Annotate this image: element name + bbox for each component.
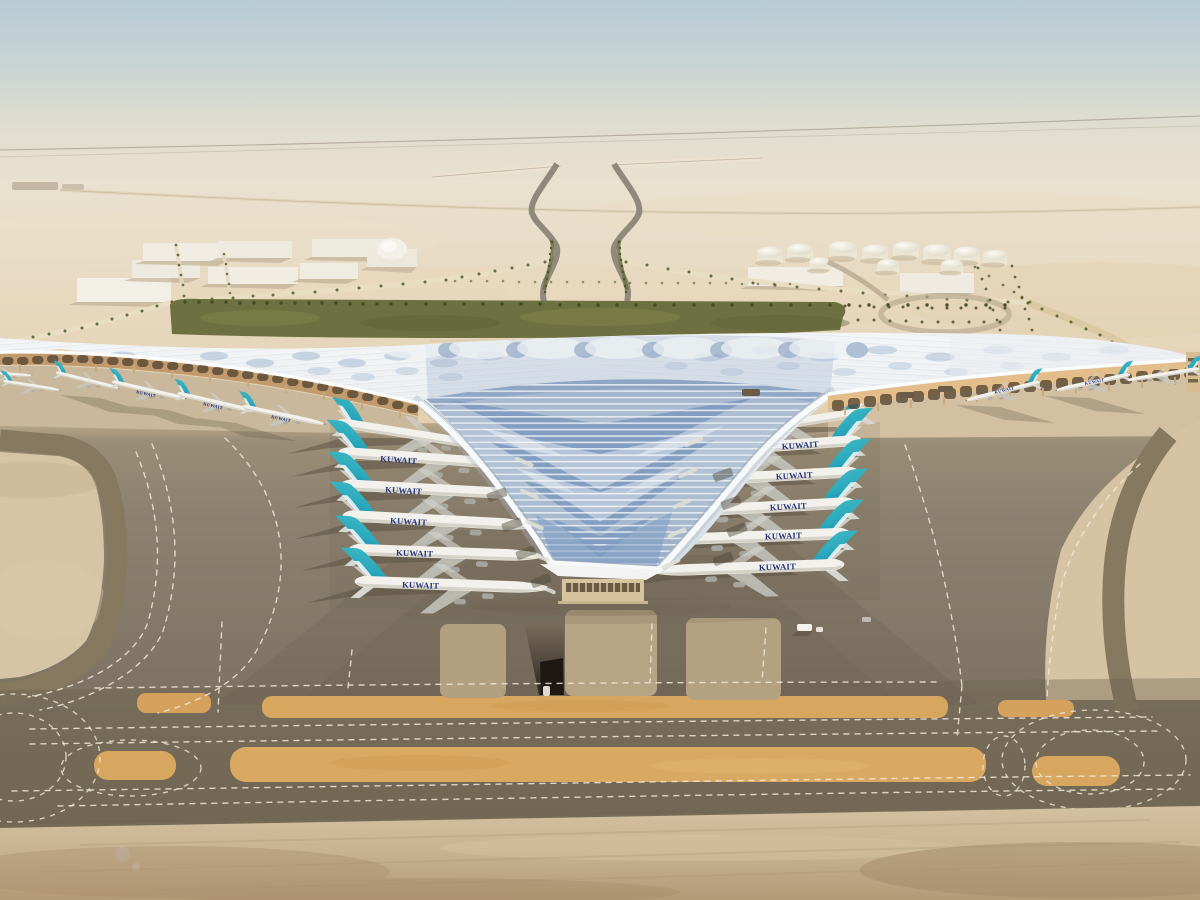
svg-text:KUWAIT: KUWAIT [759, 561, 796, 572]
svg-text:KUWAIT: KUWAIT [390, 516, 428, 528]
svg-text:KUWAIT: KUWAIT [776, 470, 814, 482]
svg-text:KUWAIT: KUWAIT [402, 580, 439, 591]
svg-text:KUWAIT: KUWAIT [765, 530, 802, 541]
svg-text:KUWAIT: KUWAIT [770, 501, 808, 513]
svg-text:KUWAIT: KUWAIT [385, 485, 423, 497]
svg-text:KUWAIT: KUWAIT [396, 548, 433, 559]
